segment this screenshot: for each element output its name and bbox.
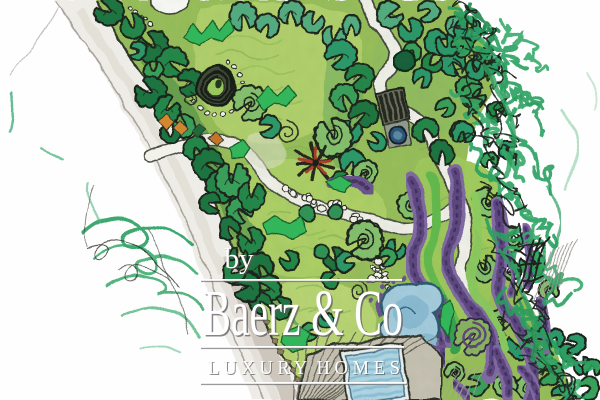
svg-text:Baerz & Co: Baerz & Co bbox=[203, 277, 403, 350]
svg-text:by: by bbox=[225, 243, 255, 275]
svg-text:L U X U R Y H O M E S: L U X U R Y H O M E S bbox=[208, 358, 400, 379]
